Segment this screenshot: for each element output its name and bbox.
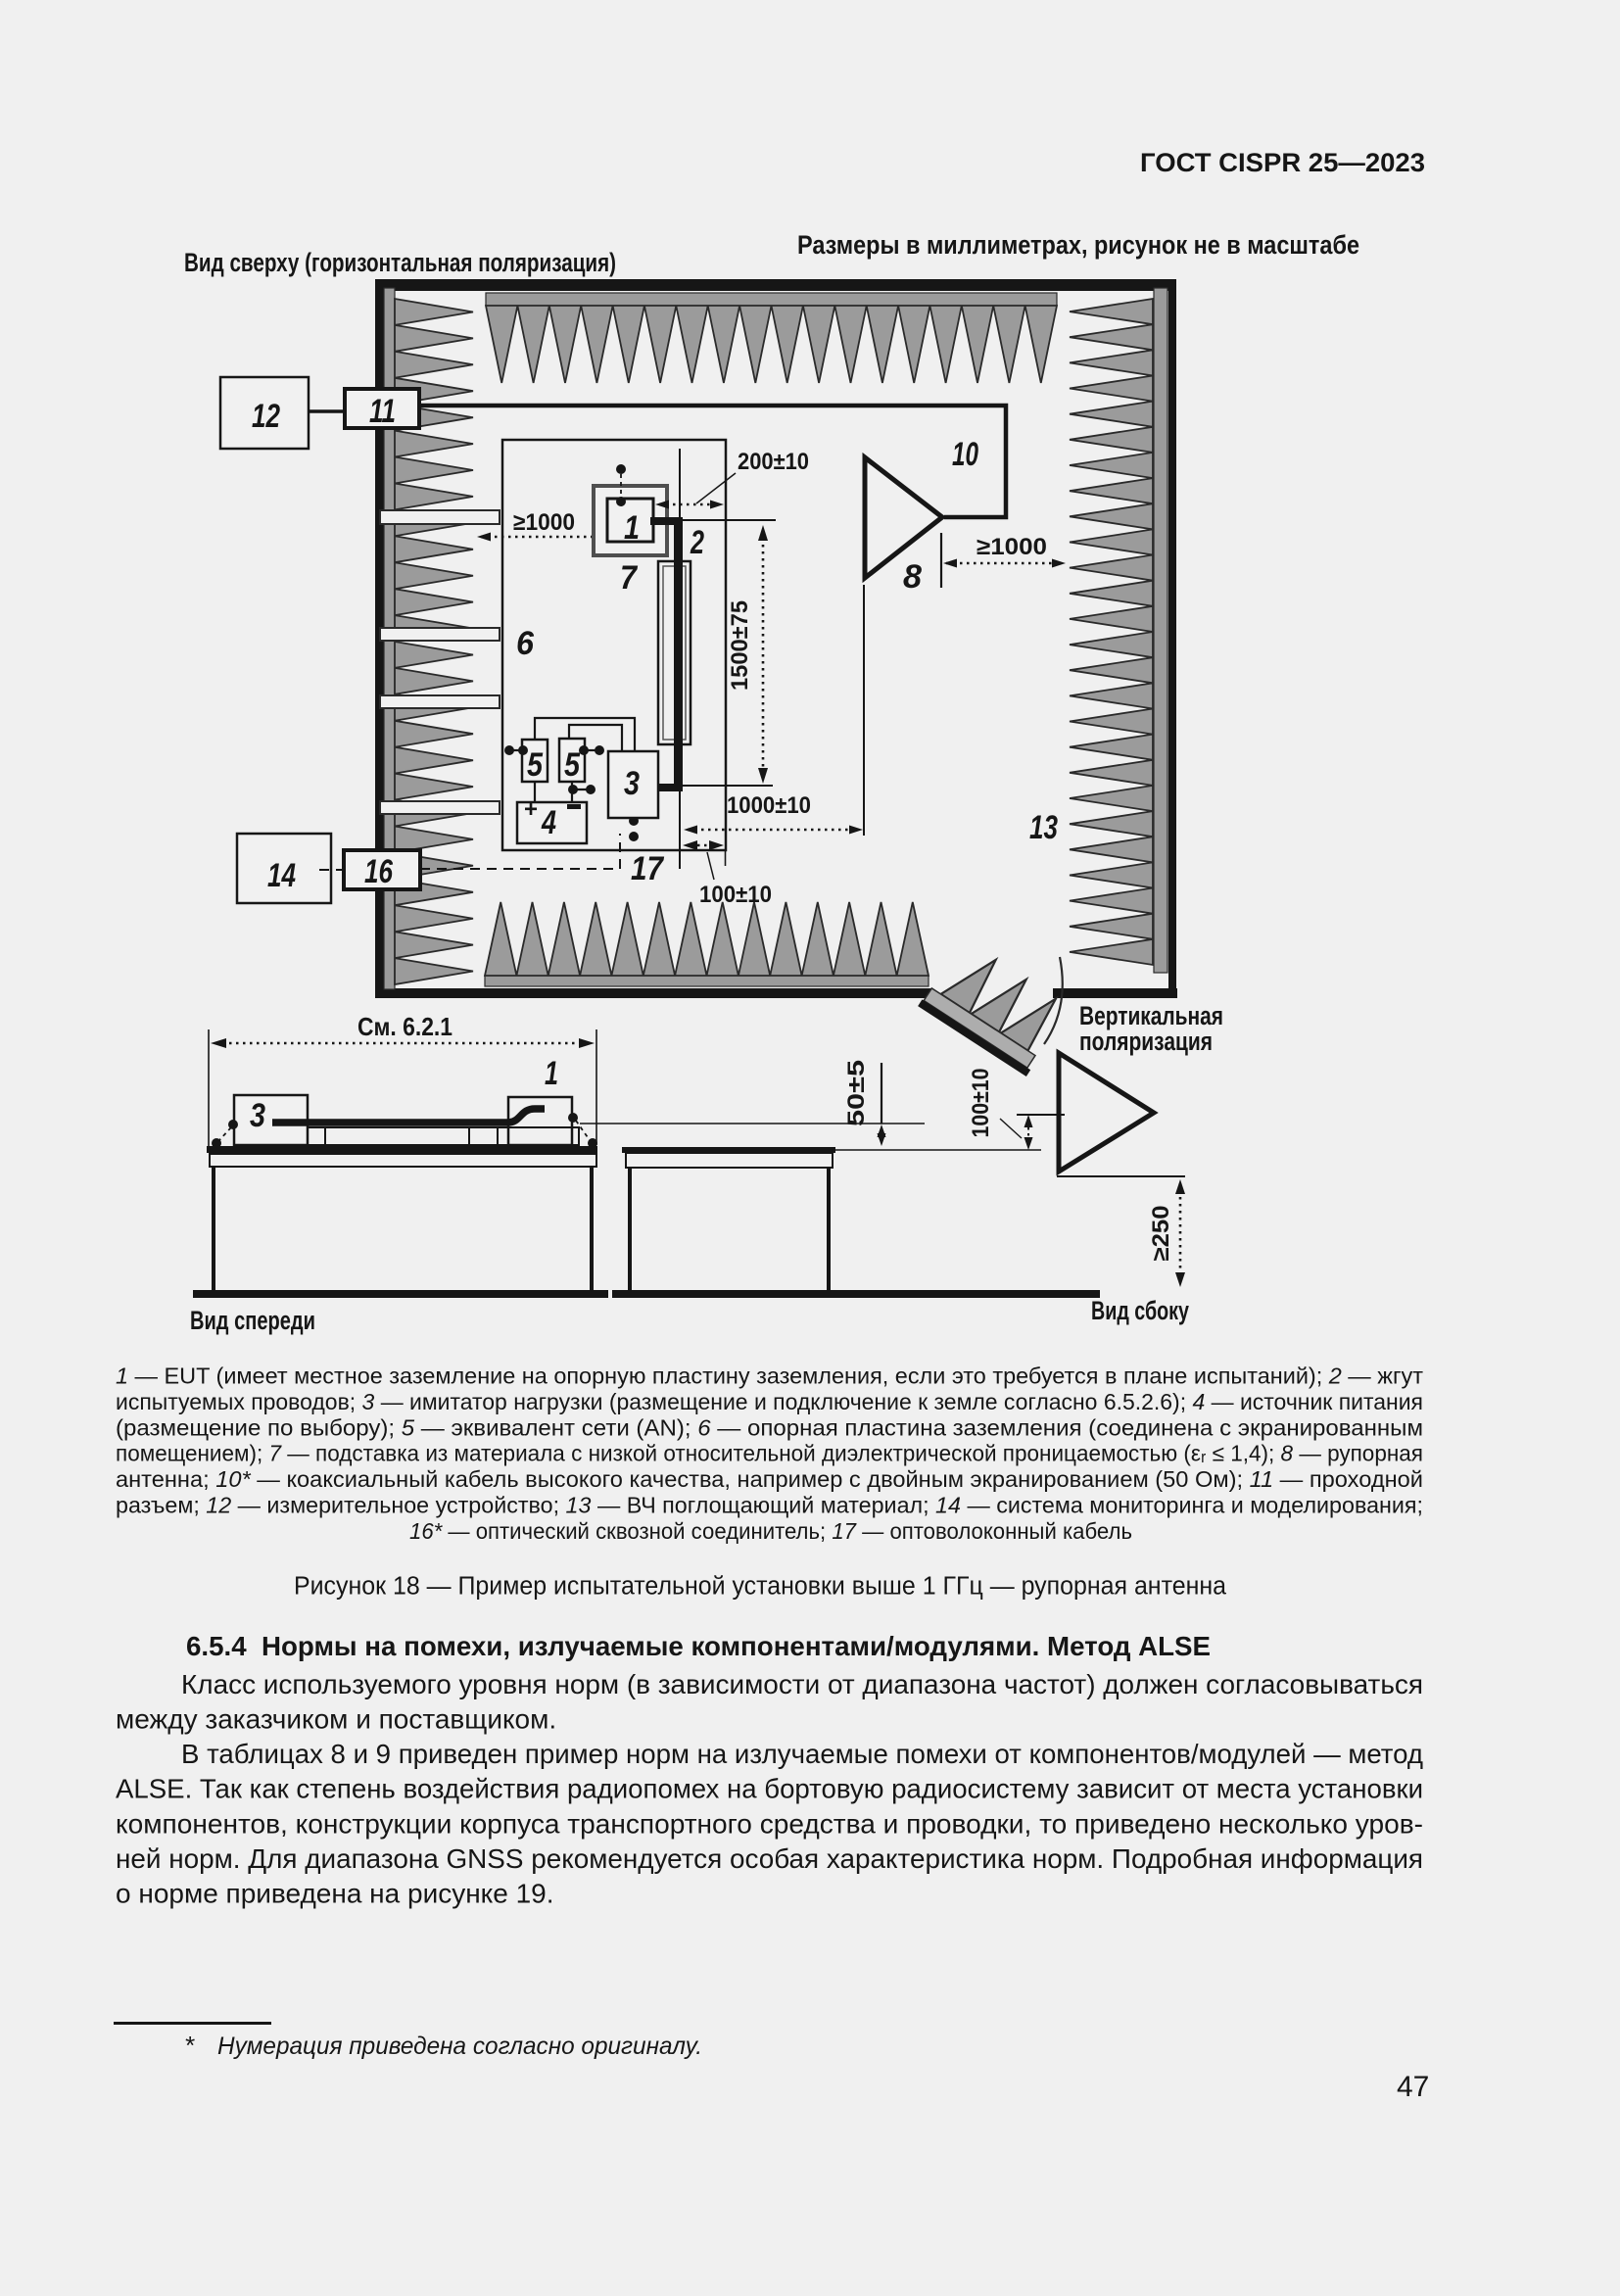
svg-text:компонентов, конструкции корпу: компонентов, конструкции корпуса транспо…	[116, 1809, 1423, 1840]
svg-text:о норме приведена на рисунке 1: о норме приведена на рисунке 19.	[116, 1879, 554, 1909]
svg-text:6.5.4 Нормы на помехи, излуча: 6.5.4 Нормы на помехи, излучаемые компон…	[186, 1631, 1211, 1661]
svg-text:(размещение по выбору); 5 — эк: (размещение по выбору); 5 — эквивалент с…	[116, 1414, 1423, 1440]
svg-text:5: 5	[564, 746, 581, 784]
svg-text:5: 5	[527, 746, 544, 784]
svg-text:Вид сбоку: Вид сбоку	[1091, 1296, 1189, 1325]
svg-text:антенна; 10* — коаксиальный ка: антенна; 10* — коаксиальный кабель высок…	[116, 1466, 1423, 1492]
svg-text:100±10: 100±10	[968, 1069, 994, 1138]
svg-text:3: 3	[250, 1097, 265, 1134]
svg-text:17: 17	[631, 850, 665, 887]
svg-text:2: 2	[690, 524, 704, 561]
svg-text:16* — оптический сквозной соед: 16* — оптический сквозной соединитель; 1…	[409, 1518, 1132, 1544]
svg-text:ALSE. Так как степень воздейст: ALSE. Так как степень воздействия радиоп…	[116, 1774, 1423, 1804]
svg-text:8: 8	[903, 558, 922, 596]
svg-text:7: 7	[620, 559, 639, 597]
svg-text:14: 14	[267, 857, 296, 894]
svg-text:11: 11	[369, 393, 396, 430]
svg-text:В таблицах 8 и 9 приведен прим: В таблицах 8 и 9 приведен пример норм на…	[181, 1739, 1423, 1769]
svg-text:разъем; 12 — измерительное уст: разъем; 12 — измерительное устройство; 1…	[116, 1493, 1423, 1518]
svg-text:≥250: ≥250	[1148, 1206, 1174, 1262]
svg-text:3: 3	[624, 765, 640, 802]
svg-text:≥1000: ≥1000	[513, 509, 575, 536]
svg-text:1 — EUT (имеет местное заземле: 1 — EUT (имеет местное заземление на опо…	[116, 1363, 1423, 1389]
svg-text:испытуемых проводов; 3 — имита: испытуемых проводов; 3 — имитатор нагруз…	[116, 1389, 1423, 1414]
svg-text:Вид сверху (горизонтальная пол: Вид сверху (горизонтальная поляризация)	[184, 248, 616, 277]
svg-text:поляризация: поляризация	[1079, 1027, 1213, 1056]
svg-text:12: 12	[252, 398, 280, 435]
svg-text:*: *	[184, 2031, 195, 2060]
svg-text:50±5: 50±5	[843, 1060, 870, 1126]
svg-text:Класс используемого уровня нор: Класс используемого уровня норм (в завис…	[181, 1669, 1423, 1699]
svg-text:Рисунок 18 — Пример испытатель: Рисунок 18 — Пример испытательной устано…	[294, 1573, 1227, 1601]
svg-text:ГОСТ CISPR 25—2023: ГОСТ CISPR 25—2023	[1140, 148, 1425, 177]
svg-text:6: 6	[516, 625, 535, 662]
svg-text:≥1000: ≥1000	[977, 534, 1047, 560]
svg-text:1500±75: 1500±75	[727, 600, 753, 691]
svg-text:между заказчиком и поставщиком: между заказчиком и поставщиком.	[116, 1704, 556, 1735]
svg-text:+: +	[524, 796, 538, 823]
svg-text:4: 4	[541, 804, 556, 841]
svg-text:47: 47	[1397, 2071, 1429, 2103]
svg-text:16: 16	[364, 853, 394, 890]
svg-text:помещением); 7 — подставка из: помещением); 7 — подставка из материала …	[116, 1441, 1423, 1466]
svg-text:Нумерация приведена согласно о: Нумерация приведена согласно оригиналу.	[217, 2033, 702, 2060]
svg-text:13: 13	[1029, 809, 1058, 846]
svg-text:Вид спереди: Вид спереди	[190, 1306, 315, 1335]
svg-text:1: 1	[545, 1055, 558, 1092]
svg-text:200±10: 200±10	[738, 449, 809, 475]
svg-text:Размеры в миллиметрах, рисунок: Размеры в миллиметрах, рисунок не в масш…	[797, 230, 1359, 260]
svg-text:ней норм. Для диапазона GNSS р: ней норм. Для диапазона GNSS рекомендует…	[116, 1843, 1423, 1874]
svg-text:1000±10: 1000±10	[727, 792, 811, 819]
svg-text:10: 10	[952, 436, 978, 473]
svg-text:1: 1	[624, 509, 640, 547]
svg-text:100±10: 100±10	[699, 882, 772, 908]
svg-text:См. 6.2.1: См. 6.2.1	[357, 1012, 453, 1041]
